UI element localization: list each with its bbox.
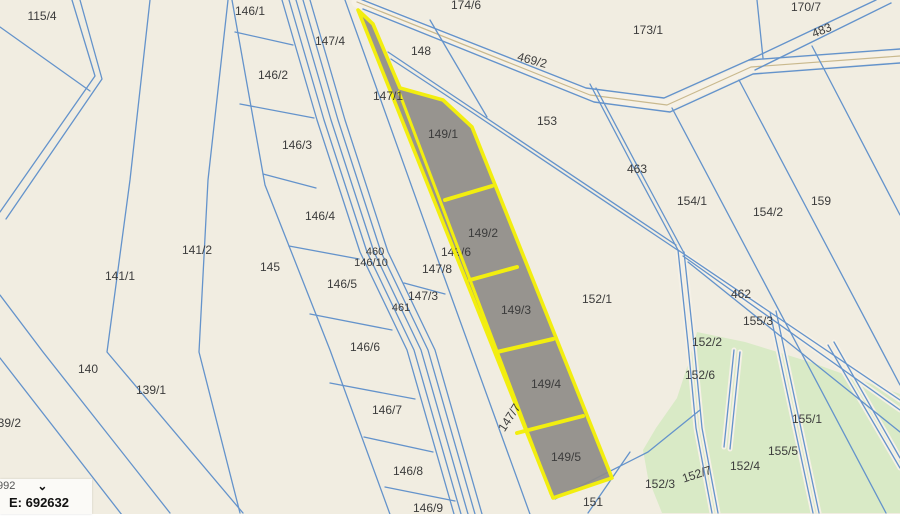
parcel-label-152/3: 152/3 — [645, 477, 675, 491]
parcel-label-461: 461 — [392, 302, 410, 314]
parcel-label-146/4: 146/4 — [305, 209, 335, 223]
parcel-label-159: 159 — [811, 194, 831, 208]
parcel-label-152/1: 152/1 — [582, 292, 612, 306]
parcel-label-462: 462 — [731, 287, 751, 301]
map-canvas[interactable]: 149/6115/4146/1174/6170/7483173/1147/414… — [0, 0, 900, 514]
parcel-label-140: 140 — [78, 362, 98, 376]
parcel-label-153: 153 — [537, 114, 557, 128]
parcel-label-147/1: 147/1 — [373, 89, 403, 103]
parcel-label-149/5: 149/5 — [551, 450, 581, 464]
parcel-label-141/1: 141/1 — [105, 269, 135, 283]
parcel-label-152/2: 152/2 — [692, 335, 722, 349]
parcel-label-146/7: 146/7 — [372, 403, 402, 417]
parcel-label-155/1: 155/1 — [792, 412, 822, 426]
parcel-label-155/5: 155/5 — [768, 444, 798, 458]
parcel-label-152/4: 152/4 — [730, 459, 760, 473]
parcel-label-149/1: 149/1 — [428, 127, 458, 141]
parcel-label-147/8: 147/8 — [422, 262, 452, 276]
parcel-label-174/6: 174/6 — [451, 0, 481, 12]
parcel-label-151: 151 — [583, 495, 603, 509]
parcel-label-463: 463 — [627, 162, 647, 176]
parcel-label-146/2: 146/2 — [258, 68, 288, 82]
parcel-label-147/4: 147/4 — [315, 34, 345, 48]
parcel-label-155/3: 155/3 — [743, 314, 773, 328]
parcel-label-147/3: 147/3 — [408, 289, 438, 303]
parcel-label-149/4: 149/4 — [531, 377, 561, 391]
parcel-label-139/2: 139/2 — [0, 416, 21, 430]
parcel-label-141/2: 141/2 — [182, 243, 212, 257]
parcel-label-146/8: 146/8 — [393, 464, 423, 478]
parcel-label-152/6: 152/6 — [685, 368, 715, 382]
parcel-label-149/3: 149/3 — [501, 303, 531, 317]
parcel-label-149/2: 149/2 — [468, 226, 498, 240]
parcel-label-146/1: 146/1 — [235, 4, 265, 18]
parcel-label-173/1: 173/1 — [633, 23, 663, 37]
coordinate-widget[interactable]: 992 ⌄ E: 692632 — [0, 479, 92, 514]
parcel-label-145: 145 — [260, 260, 280, 274]
easting-value: E: 692632 — [0, 493, 92, 510]
parcel-label-148: 148 — [411, 44, 431, 58]
parcel-label-146/6: 146/6 — [350, 340, 380, 354]
parcel-label-146/10: 146/10 — [354, 257, 388, 269]
parcel-label-146/9: 146/9 — [413, 501, 443, 514]
chevron-down-icon[interactable]: ⌄ — [37, 482, 47, 490]
parcel-label-154/2: 154/2 — [753, 205, 783, 219]
coordinate-system-value: 992 — [0, 480, 15, 492]
coordinate-system-row[interactable]: 992 ⌄ — [0, 479, 92, 493]
parcel-label-170/7: 170/7 — [791, 0, 821, 14]
parcel-label-115/4: 115/4 — [27, 9, 56, 23]
parcel-label-146/3: 146/3 — [282, 138, 312, 152]
parcel-label-146/5: 146/5 — [327, 277, 357, 291]
parcel-label-139/1: 139/1 — [136, 383, 166, 397]
map-viewport[interactable]: 149/6115/4146/1174/6170/7483173/1147/414… — [0, 0, 900, 528]
parcel-label-154/1: 154/1 — [677, 194, 707, 208]
